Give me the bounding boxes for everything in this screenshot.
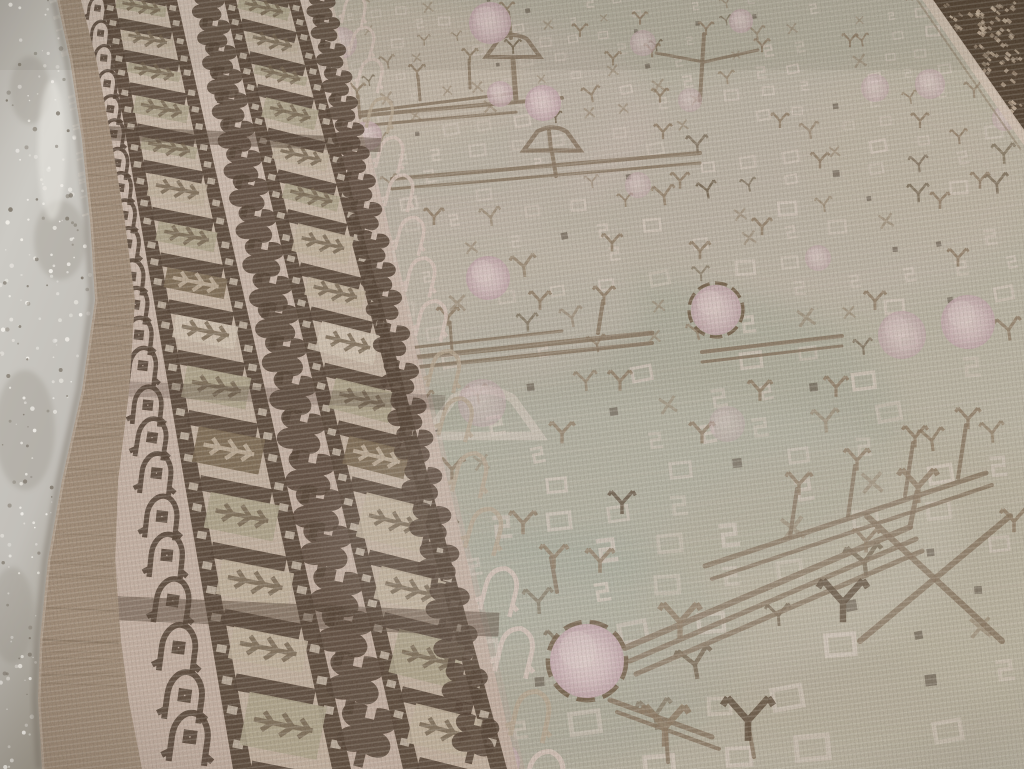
- photo-vignette: [0, 0, 1024, 769]
- rug-photo: [0, 0, 1024, 769]
- photo-canvas: [0, 0, 1024, 769]
